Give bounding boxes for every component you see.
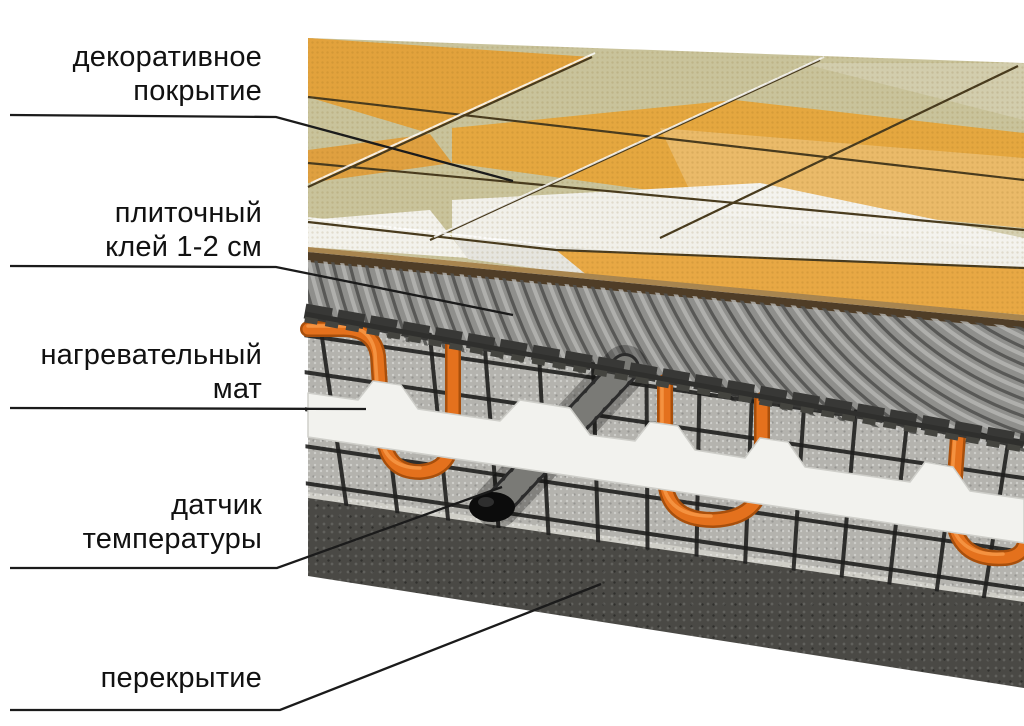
label-text: мат [213,373,262,405]
label-slab: перекрытие [10,661,262,695]
label-text: плиточный [115,197,262,229]
label-text: декоративное [73,41,262,73]
label-text: перекрытие [101,662,262,694]
label-text: нагревательный [40,339,262,371]
label-tile-adhesive: плиточный клей 1-2 см [10,196,262,264]
leader-line-decorative [10,115,513,181]
leader-line-mat [10,408,366,409]
label-decorative-coating: декоративное покрытие [10,40,262,108]
leader-line-adhesive [10,266,513,315]
label-text: покрытие [133,75,262,107]
label-heating-mat: нагревательный мат [10,338,262,406]
label-text: датчик [171,489,262,521]
label-text: температуры [83,523,262,555]
diagram-canvas: декоративное покрытие плиточный клей 1-2… [0,0,1024,726]
label-text: клей 1-2 см [105,231,262,263]
label-temperature-sensor: датчик температуры [10,488,262,556]
